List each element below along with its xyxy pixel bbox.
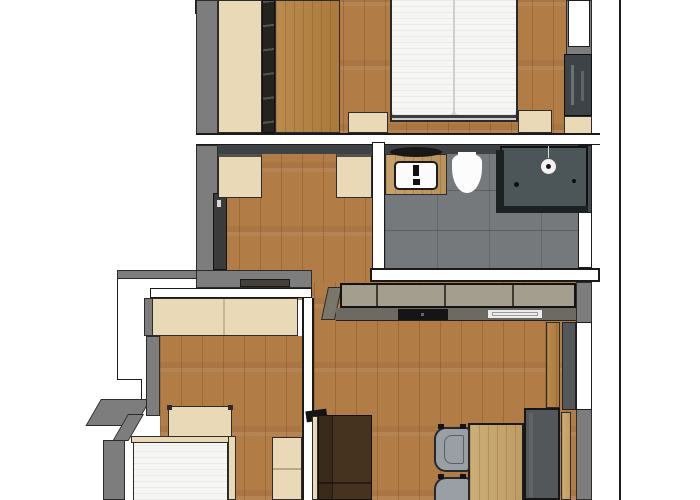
sofa-seat-seam (319, 482, 371, 484)
chair-seat-line (444, 435, 464, 464)
chair-knob4 (460, 474, 466, 479)
wardrobe2-front (152, 298, 298, 336)
chair-knob (438, 424, 444, 429)
wardrobe-ladder-shelf (262, 0, 275, 133)
shower-control-dot2 (572, 179, 576, 183)
wall-shelf-wood (564, 116, 592, 134)
chair-knob3 (438, 474, 444, 479)
shower-glass-left (496, 150, 504, 212)
entry-outline-step-v (141, 379, 142, 400)
mattress-right (455, 0, 516, 115)
entry-outline-vertical (117, 270, 118, 380)
nightstand-left (348, 112, 388, 133)
bedroom2-nightstand (272, 437, 302, 500)
entry-niche (213, 193, 227, 270)
bedroom-main-left-wall (196, 0, 218, 145)
entry-door-handle (217, 200, 221, 207)
hallway-cabinet-right (336, 154, 372, 198)
entrance-door-leaf (546, 322, 560, 408)
chair-knob2 (460, 424, 466, 429)
drain (413, 179, 420, 185)
showerhead (540, 158, 557, 175)
sofa (318, 415, 372, 500)
showerhead-center (546, 164, 551, 169)
wardrobe2-seam (223, 299, 225, 335)
bench-highlight (529, 413, 533, 497)
dining-table (468, 423, 524, 500)
sofa-backrest (319, 416, 333, 499)
bed2-frame-right (228, 436, 236, 500)
entry-step-wall (117, 270, 197, 279)
bathroom-door-opening (578, 212, 592, 268)
mattress-left (392, 0, 453, 115)
nightstand-shelf-line (273, 468, 301, 470)
corner-bench (524, 408, 560, 500)
cabinet-seam (376, 285, 378, 306)
shower-control-dot (514, 182, 519, 187)
round-mirror (390, 147, 442, 157)
faucet (413, 165, 419, 176)
dining-chair-2 (434, 477, 470, 500)
wardrobe-panel-brown (275, 0, 340, 133)
cabinet-rail-mark2 (581, 71, 584, 101)
cabinet-seam2 (444, 285, 446, 306)
nightstand-right (518, 110, 552, 133)
cooktop (398, 309, 448, 320)
cabinet-rail-mark (571, 65, 574, 105)
kitchen-sink (487, 309, 543, 319)
floor-plan (0, 0, 700, 500)
bed-foot-frame (392, 115, 516, 118)
bathroom-pillar-wall (372, 142, 385, 271)
kitchen-cabinets (340, 283, 576, 308)
bed2-mattress (133, 442, 228, 500)
wall-cabinet-dark (564, 54, 592, 116)
washbasin (394, 161, 438, 190)
cabinet-seam3 (512, 285, 514, 306)
entrance-door-opening (576, 322, 592, 410)
double-bed (390, 0, 518, 122)
cooktop-knob (421, 313, 424, 316)
bedroom2-left-wall-mid (146, 336, 160, 416)
bathroom-bottom-wall (370, 268, 600, 282)
bedpost2 (228, 405, 233, 410)
entry-ramp (85, 399, 151, 426)
hallway-cabinet-left (218, 154, 262, 198)
bedroom-main-window (568, 0, 590, 47)
bedpost (167, 405, 172, 410)
bed2-headboard (168, 406, 232, 437)
boundary-line-right (619, 0, 621, 500)
bench-wood-strip (561, 412, 571, 500)
shower-glass-front (496, 206, 588, 213)
entry-outline-step-h (117, 379, 142, 380)
bedroom2-top-wall (150, 288, 312, 298)
entrance-door-shadow (562, 322, 576, 410)
shower-enclosure (500, 146, 588, 208)
bedroom2-left-wall-low (103, 440, 125, 500)
wardrobe-panel-light (218, 0, 262, 133)
dividing-wall-band (196, 133, 600, 145)
dining-chair-1 (434, 427, 470, 472)
doormat (240, 279, 290, 287)
sink-basin-line (492, 312, 538, 316)
